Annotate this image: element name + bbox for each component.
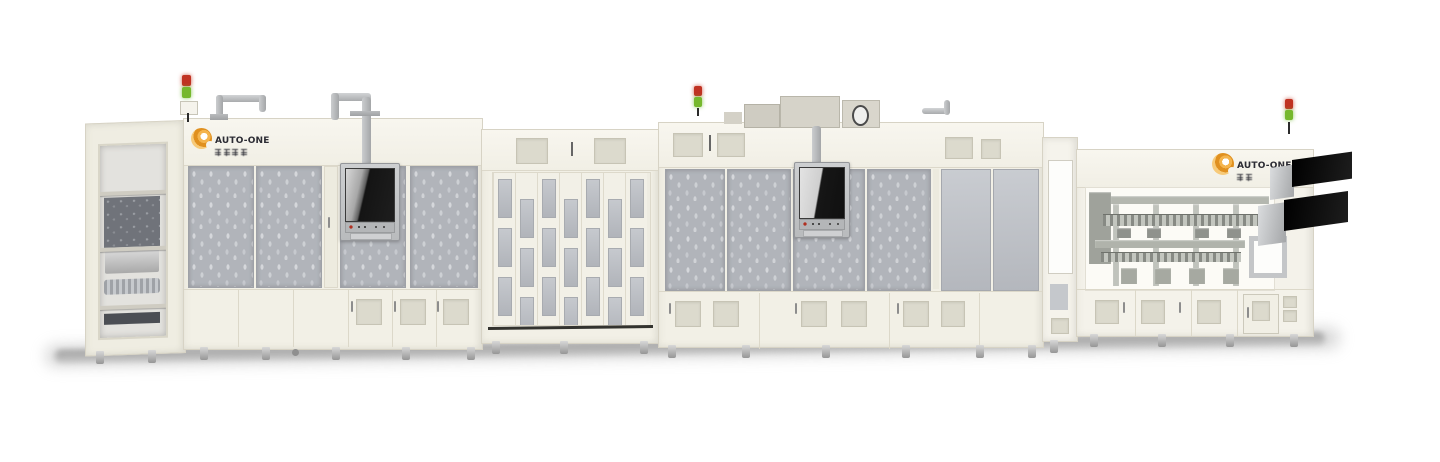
leveling-foot [822,345,830,358]
leveling-foot [640,341,648,354]
cabinet-seam [659,291,1043,292]
base-dark-rail [488,325,653,330]
cabinet-seam [184,289,482,290]
machinery-block [1227,228,1241,238]
stack-light-red [694,86,702,96]
cjk-glyph [241,149,247,156]
interior-dark-strip [104,312,160,325]
interior-silver-parts [105,248,159,274]
right-access-door [1243,294,1279,334]
brand-wordmark: AUTO-ONE [215,136,270,146]
tower-window [1048,160,1073,274]
door-divider [324,166,338,288]
top-band-vent [945,137,973,159]
brand-logo-left: AUTO-ONE [191,128,270,156]
monitor-arm-elbow [331,93,339,120]
machinery-top-beam [1111,196,1269,204]
folding-door-column [581,173,603,325]
folding-door-column [559,173,581,325]
swirl-notch [206,141,214,149]
toothed-rack [1103,214,1271,226]
door-slot-window [520,297,534,326]
hmi-screen [799,167,845,219]
stack-light-green [694,97,702,107]
hmi-keyboard-tray [803,230,843,237]
roof-cylinder [852,105,869,126]
band-latch-mark [709,135,711,151]
base-door-vent [801,301,827,327]
leveling-foot [902,345,910,358]
mesh-door-panel [410,166,478,288]
module1-side-window [98,142,168,340]
door-handle [351,301,353,312]
leveling-foot [976,345,984,358]
mesh-door-panel [665,169,725,291]
door-slot-window [520,199,534,238]
cabinet-seam [1237,290,1238,336]
roof-handle-pipe [944,100,950,115]
hmi-monitor-left [340,163,400,241]
folding-door-area [492,172,651,326]
glass-door-panel [941,169,991,291]
mesh-door-panel [188,166,254,288]
hmi-screen [345,168,395,222]
hmi-keyboard-tray [350,233,392,240]
roof-equipment-box [780,96,840,128]
brand-swirl-icon [1212,153,1234,175]
module4-left-tower [1042,137,1078,342]
roof-pipe-base [210,114,228,120]
door-slot-window [608,248,622,287]
cabinet-seam [1077,289,1313,290]
cabinet-seam [759,293,760,349]
stack-light-pole [187,113,189,122]
cabinet-seam [392,290,393,347]
base-door-vent [841,301,867,327]
leveling-foot [560,341,568,354]
folding-door-column [625,173,647,325]
leveling-foot [96,351,104,364]
door-slot-window [498,277,512,316]
base-door-vent [356,299,382,325]
machinery-block [1117,228,1131,238]
base-door-vent [1095,300,1119,324]
door-slot-window [586,179,600,218]
leveling-foot [492,341,500,354]
folding-door-column [603,173,625,325]
plate-bracket [1270,165,1294,200]
mesh-door-panel [867,169,931,291]
door-slot-window [564,297,578,326]
hmi-control-strip [345,222,395,233]
door-slot-window [542,277,556,316]
caster-wheel [292,349,299,356]
machinery-mid-shelf [1095,240,1245,248]
hmi-monitor-center [794,162,850,238]
machinery-block [1195,228,1209,238]
leveling-foot [262,347,270,360]
module1-cabinet: AUTO-ONE [183,118,483,350]
cabinet-seam [348,290,349,347]
leveling-foot [200,347,208,360]
cabinet-seam [238,290,239,347]
stack-light-pole [1288,122,1290,134]
stack-light-red [182,75,191,86]
base-door-vent [1141,300,1165,324]
leveling-foot [742,345,750,358]
leveling-foot [467,347,475,360]
folding-door-column [537,173,559,325]
door-handle [897,303,899,314]
door-slot-window [564,199,578,238]
brand-chinese-subtext [215,149,270,156]
door-slot-window [520,248,534,287]
door-vent [1252,301,1270,321]
leveling-foot [1226,334,1234,347]
door-slot-window [542,228,556,267]
folding-door-column [493,173,515,325]
cabinet-seam [979,293,980,349]
machinery-block [1223,268,1239,284]
stack-light-red [1285,99,1293,109]
machinery-block [1147,228,1161,238]
base-door-vent [443,299,469,325]
leveling-foot [1290,334,1298,347]
door-slot-window [564,248,578,287]
cabinet-seam [1135,290,1136,336]
leveling-foot [1090,334,1098,347]
plate-bracket [1258,202,1286,246]
monitor-arm-base [350,111,380,116]
door-slot-window [630,179,644,218]
toothed-rack [1101,252,1241,262]
door-divider [933,169,939,289]
cjk-glyph [224,149,230,156]
leveling-foot [1158,334,1166,347]
stack-light-base [180,101,198,115]
door-handle [1247,307,1249,318]
door-slot-window [630,228,644,267]
door-slot-window [586,228,600,267]
swirl-notch [1228,167,1236,175]
machinery-block [1155,268,1171,284]
door-slot-window [630,277,644,316]
door-handle [669,303,671,314]
door-slot-window [498,228,512,267]
top-band-vent [717,133,745,157]
door-handle [1123,302,1125,313]
base-door-vent [903,301,929,327]
top-band-vent [673,133,703,157]
base-door-vent [675,301,701,327]
roof-handle-pipe [259,95,266,112]
top-band-vent [981,139,1001,159]
small-side-vent [1283,296,1297,308]
folding-door-column [515,173,537,325]
machinery-block [1121,268,1137,284]
mesh-door-panel [727,169,791,291]
roof-equipment-box [744,104,780,128]
glass-door-panel [993,169,1039,291]
leveling-foot [148,350,156,363]
door-handle [394,301,396,312]
base-door-vent [400,299,426,325]
cabinet-seam [436,290,437,347]
door-slot-window [542,179,556,218]
door-handle [328,217,330,228]
leveling-foot [332,347,340,360]
cjk-glyph [1246,174,1252,181]
stack-light-green [1285,110,1293,120]
hmi-control-strip [799,219,845,230]
cabinet-seam [1191,290,1192,336]
roof-equipment-box [724,112,742,124]
brand-swirl-icon [191,128,212,149]
base-door-vent [1197,300,1221,324]
production-line-render: AUTO-ONE [0,0,1440,462]
tower-gray-block [1050,284,1068,310]
leveling-foot [402,347,410,360]
leveling-foot [668,345,676,358]
tower-vent [1051,318,1069,334]
small-side-vent [1283,310,1297,322]
leveling-foot [1028,345,1036,358]
door-slot-window [586,277,600,316]
mesh-door-panel [256,166,322,288]
band-latch-mark [571,142,573,156]
module3-cabinet [658,122,1044,348]
door-slot-window [608,199,622,238]
monitor-arm-vertical [812,126,821,166]
cjk-glyph [1237,174,1243,181]
machinery-block [1189,268,1205,284]
stack-light-pole [697,108,699,116]
interior-shelf [100,304,166,310]
top-band-vent [516,138,548,164]
interior-coil-row [104,278,160,295]
door-handle [1179,302,1181,313]
leveling-foot [1050,340,1058,353]
door-handle [795,303,797,314]
cjk-glyph [215,149,221,156]
interior-dark-mesh [104,196,160,248]
door-slot-window [498,179,512,218]
monitor-arm-vertical [362,97,371,165]
cabinet-seam [889,293,890,349]
base-door-vent [941,301,965,327]
module2-cabinet [481,129,660,344]
top-band-vent [594,138,626,164]
stack-light-green [182,87,191,98]
module1-side-panel [85,120,186,357]
base-door-vent [713,301,739,327]
door-handle [437,301,439,312]
cabinet-seam [293,290,294,347]
cjk-glyph [232,149,238,156]
door-slot-window [608,297,622,326]
